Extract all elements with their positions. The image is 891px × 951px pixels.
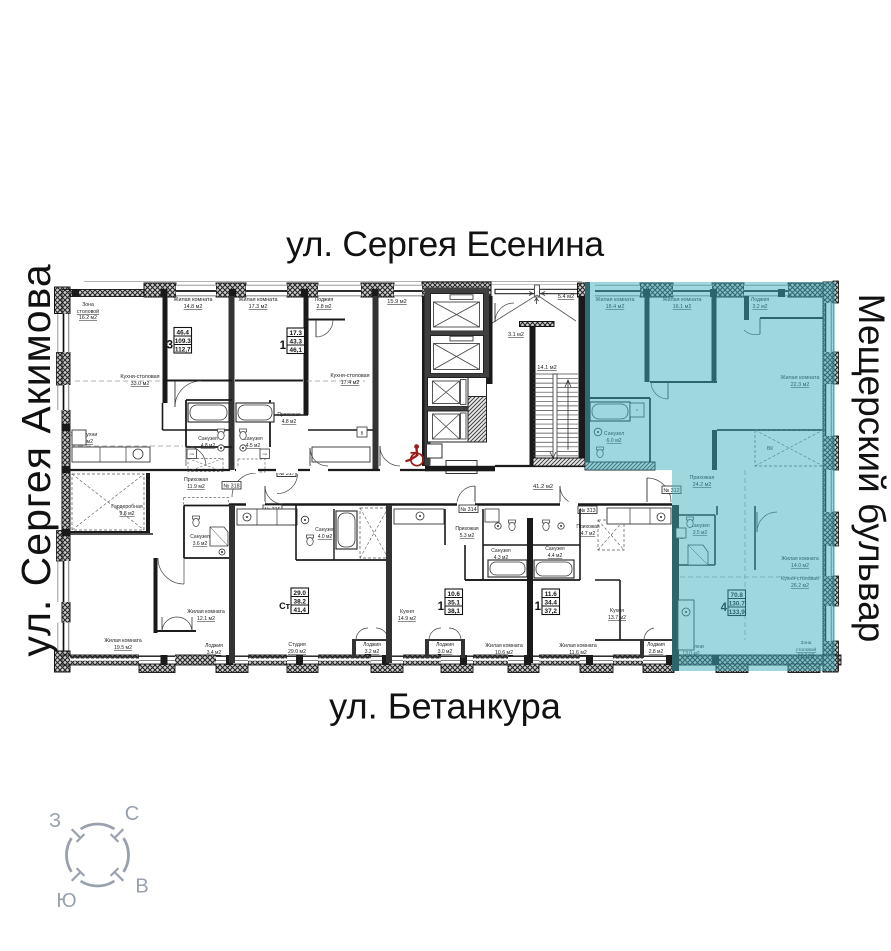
svg-text:4.7 м2: 4.7 м2 xyxy=(581,531,596,537)
svg-text:1: 1 xyxy=(535,601,542,613)
svg-text:1: 1 xyxy=(280,340,287,352)
svg-text:Лоджия: Лоджия xyxy=(436,642,454,648)
svg-text:43.3: 43.3 xyxy=(290,338,303,345)
svg-text:Кухня: Кухня xyxy=(610,608,624,614)
svg-text:13.7 м2: 13.7 м2 xyxy=(608,615,626,621)
svg-text:Жилая комната: Жилая комната xyxy=(187,609,225,615)
svg-text:12.1 м2: 12.1 м2 xyxy=(197,616,215,622)
svg-text:10.6 м2: 10.6 м2 xyxy=(495,650,513,656)
svg-text:17.4 м2: 17.4 м2 xyxy=(341,380,360,386)
svg-text:29.0: 29.0 xyxy=(294,590,307,597)
svg-text:4.5 м2: 4.5 м2 xyxy=(246,443,261,449)
svg-text:№ 314: № 314 xyxy=(460,507,476,513)
svg-text:Кухня-столовая: Кухня-столовая xyxy=(330,373,369,379)
svg-text:Зона: Зона xyxy=(82,302,94,308)
svg-text:38,1: 38,1 xyxy=(448,608,461,615)
svg-text:Жилая комната: Жилая комната xyxy=(239,297,278,303)
svg-text:З: З xyxy=(49,810,61,832)
svg-text:14.8 м2: 14.8 м2 xyxy=(184,304,203,310)
svg-text:19.5 м2: 19.5 м2 xyxy=(114,645,132,651)
svg-text:Жилая комната: Жилая комната xyxy=(559,643,597,649)
svg-text:Лоджия: Лоджия xyxy=(647,642,665,648)
svg-text:Санузел: Санузел xyxy=(198,436,218,442)
svg-text:3.0 м2: 3.0 м2 xyxy=(438,649,453,655)
svg-text:11.9 м2: 11.9 м2 xyxy=(187,484,205,490)
svg-text:Прихожая: Прихожая xyxy=(455,526,478,532)
svg-text:11.6: 11.6 xyxy=(545,591,558,598)
svg-text:стм: стм xyxy=(262,452,267,456)
svg-text:109.3: 109.3 xyxy=(175,338,191,345)
svg-text:17.3 м2: 17.3 м2 xyxy=(249,304,268,310)
svg-text:37,2: 37,2 xyxy=(545,608,558,615)
svg-text:С: С xyxy=(125,803,139,825)
svg-text:35.1: 35.1 xyxy=(448,599,461,606)
svg-text:Санузел: Санузел xyxy=(545,546,565,552)
svg-text:№ 313: № 313 xyxy=(579,508,595,514)
svg-text:33.0 м2: 33.0 м2 xyxy=(131,381,150,387)
svg-text:16.2 м2: 16.2 м2 xyxy=(79,315,97,321)
svg-text:5.3 м2: 5.3 м2 xyxy=(460,533,475,539)
svg-text:9.8 м2: 9.8 м2 xyxy=(119,511,134,517)
svg-text:стм: стм xyxy=(189,452,194,456)
svg-text:Санузел: Санузел xyxy=(491,548,511,554)
svg-text:Гардеробная: Гардеробная xyxy=(111,504,143,510)
svg-text:Санузел: Санузел xyxy=(190,534,210,540)
svg-text:38.2: 38.2 xyxy=(294,598,307,605)
svg-text:14.1 м2: 14.1 м2 xyxy=(537,365,556,371)
svg-text:5.4 м2: 5.4 м2 xyxy=(558,294,574,300)
svg-text:15.9 м2: 15.9 м2 xyxy=(387,299,406,305)
svg-text:4.0 м2: 4.0 м2 xyxy=(318,534,333,540)
svg-text:Лоджия: Лоджия xyxy=(205,643,223,649)
svg-text:3.4 м2: 3.4 м2 xyxy=(207,650,222,656)
svg-text:Прихожая: Прихожая xyxy=(184,477,208,483)
svg-text:ул. Бетанкура: ул. Бетанкура xyxy=(329,686,562,727)
svg-text:17.3: 17.3 xyxy=(290,330,303,337)
svg-text:10.6: 10.6 xyxy=(448,591,461,598)
svg-text:столовой: столовой xyxy=(77,308,99,315)
svg-text:34.4: 34.4 xyxy=(545,599,558,606)
svg-text:2.8 м2: 2.8 м2 xyxy=(649,649,664,655)
svg-text:Жилая комната: Жилая комната xyxy=(485,643,523,649)
svg-text:в: в xyxy=(361,431,364,437)
svg-text:Жилая комната: Жилая комната xyxy=(104,638,142,644)
svg-text:Кухня-столовая: Кухня-столовая xyxy=(120,374,159,380)
svg-text:ул. Сергея Акимова: ул. Сергея Акимова xyxy=(13,263,59,656)
svg-text:Ю: Ю xyxy=(56,890,76,912)
svg-text:1: 1 xyxy=(438,601,445,613)
svg-text:Мещерский бульвар: Мещерский бульвар xyxy=(851,294,891,643)
svg-text:Лоджия: Лоджия xyxy=(363,642,381,648)
svg-text:Санузел: Санузел xyxy=(315,527,335,533)
svg-text:Кухня: Кухня xyxy=(400,609,414,615)
svg-text:4.8 м2: 4.8 м2 xyxy=(201,443,216,449)
svg-text:3: 3 xyxy=(167,340,173,352)
svg-text:ул. Сергея Есенина: ул. Сергея Есенина xyxy=(286,224,604,264)
svg-text:2.8 м2: 2.8 м2 xyxy=(316,304,331,310)
svg-text:41,4: 41,4 xyxy=(294,607,307,614)
svg-text:29.0 м2: 29.0 м2 xyxy=(288,649,306,655)
svg-text:41.2 м2: 41.2 м2 xyxy=(533,484,553,490)
svg-text:4.4 м2: 4.4 м2 xyxy=(548,553,563,559)
svg-text:Студия: Студия xyxy=(288,642,306,648)
svg-text:В: В xyxy=(135,876,148,898)
svg-text:Жилая комната: Жилая комната xyxy=(174,297,213,303)
svg-text:11.6 м2: 11.6 м2 xyxy=(569,650,587,656)
svg-text:Лоджия: Лоджия xyxy=(315,297,334,303)
svg-text:Ст: Ст xyxy=(279,601,290,611)
svg-text:112,7: 112,7 xyxy=(175,346,191,353)
svg-text:14.9 м2: 14.9 м2 xyxy=(398,616,416,622)
svg-text:3.2 м2: 3.2 м2 xyxy=(365,649,380,655)
svg-text:4.8 м2: 4.8 м2 xyxy=(282,419,297,425)
svg-text:46.4: 46.4 xyxy=(177,329,190,336)
svg-text:46,1: 46,1 xyxy=(290,347,303,354)
svg-text:№ 318: № 318 xyxy=(223,483,239,489)
svg-text:3.6 м2: 3.6 м2 xyxy=(193,541,208,547)
svg-text:3.1 м2: 3.1 м2 xyxy=(508,332,524,338)
